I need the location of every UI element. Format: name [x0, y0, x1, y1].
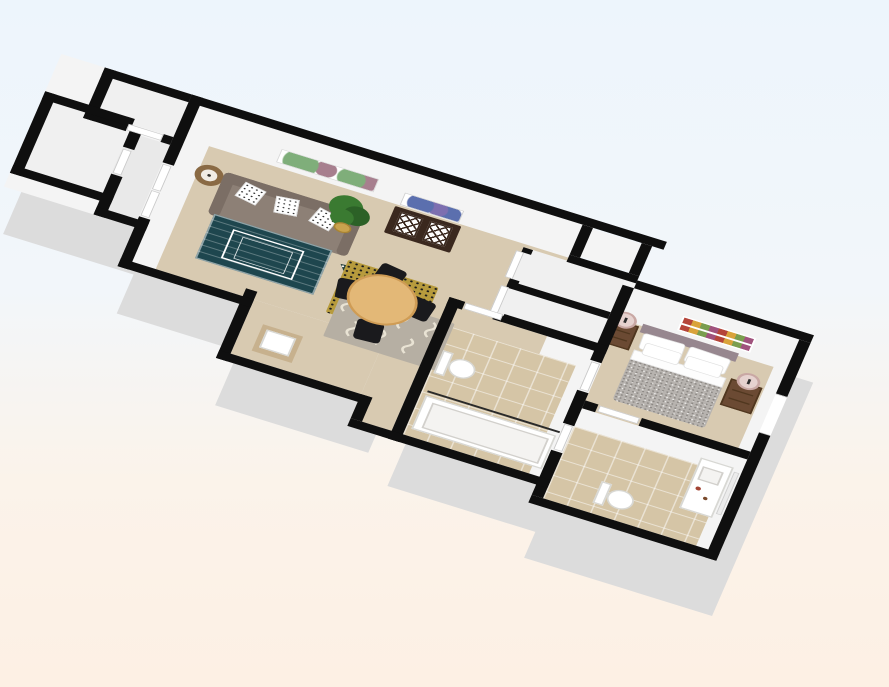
cabinet-door [422, 221, 453, 247]
throw-pillow [273, 196, 300, 217]
cabinet-door [392, 212, 423, 238]
floor-plan-scene[interactable] [0, 0, 889, 687]
